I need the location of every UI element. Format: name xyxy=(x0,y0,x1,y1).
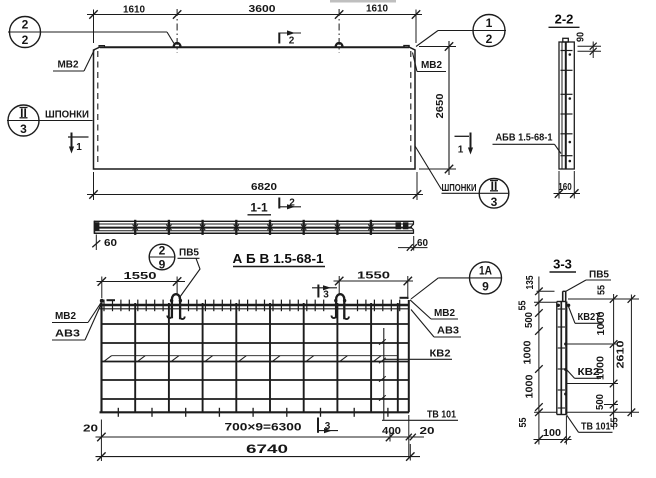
svg-text:МВ2: МВ2 xyxy=(434,308,455,319)
svg-text:400: 400 xyxy=(382,426,401,437)
svg-text:1000: 1000 xyxy=(596,356,607,380)
svg-text:6740: 6740 xyxy=(246,442,289,456)
svg-text:60: 60 xyxy=(104,238,118,249)
svg-text:20: 20 xyxy=(420,426,436,437)
svg-text:55: 55 xyxy=(518,300,529,310)
svg-text:3: 3 xyxy=(491,195,498,209)
svg-text:ПВ5: ПВ5 xyxy=(589,270,609,281)
svg-text:КВ2: КВ2 xyxy=(430,349,451,360)
svg-text:ШПОНКИ: ШПОНКИ xyxy=(442,183,477,194)
svg-text:1: 1 xyxy=(458,145,464,156)
svg-text:700×9=6300: 700×9=6300 xyxy=(225,422,302,434)
svg-text:ТВ 101: ТВ 101 xyxy=(427,410,456,421)
svg-text:135: 135 xyxy=(525,275,536,289)
svg-text:55: 55 xyxy=(610,417,621,427)
svg-text:3-3: 3-3 xyxy=(553,257,572,272)
svg-text:2-2: 2-2 xyxy=(555,12,574,27)
svg-text:ШПОНКИ: ШПОНКИ xyxy=(45,110,89,121)
svg-text:МВ2: МВ2 xyxy=(55,311,76,322)
svg-text:АБВ 1.5-68-1: АБВ 1.5-68-1 xyxy=(496,133,553,144)
svg-text:55: 55 xyxy=(597,285,608,295)
svg-text:3: 3 xyxy=(20,122,27,136)
svg-text:2610: 2610 xyxy=(616,340,627,369)
svg-text:1: 1 xyxy=(76,142,82,153)
svg-text:АВ3: АВ3 xyxy=(437,326,459,337)
svg-text:3: 3 xyxy=(323,290,329,301)
svg-text:2: 2 xyxy=(22,18,29,32)
svg-text:500: 500 xyxy=(524,312,535,328)
svg-text:2: 2 xyxy=(486,32,493,46)
svg-text:2: 2 xyxy=(22,33,29,47)
svg-text:1000: 1000 xyxy=(596,311,607,335)
svg-text:1: 1 xyxy=(486,16,493,30)
svg-text:1550: 1550 xyxy=(357,271,391,282)
svg-text:МВ2: МВ2 xyxy=(421,60,442,71)
svg-text:2: 2 xyxy=(289,198,295,209)
svg-text:9: 9 xyxy=(482,280,489,294)
svg-text:1А: 1А xyxy=(479,264,492,278)
svg-text:3600: 3600 xyxy=(249,4,277,15)
svg-text:100: 100 xyxy=(543,428,561,439)
svg-text:2: 2 xyxy=(159,244,166,258)
svg-text:160: 160 xyxy=(558,182,572,193)
svg-text:2650: 2650 xyxy=(435,93,446,118)
svg-text:1610: 1610 xyxy=(366,4,388,15)
svg-text:1610: 1610 xyxy=(123,5,145,16)
svg-text:1550: 1550 xyxy=(124,271,158,282)
svg-text:3: 3 xyxy=(325,421,331,432)
svg-text:60: 60 xyxy=(417,238,428,249)
svg-text:А Б В 1.5-68-1: А Б В 1.5-68-1 xyxy=(233,251,324,266)
svg-text:9: 9 xyxy=(159,258,166,272)
svg-text:500: 500 xyxy=(595,394,606,410)
svg-text:АВ3: АВ3 xyxy=(55,329,81,340)
svg-text:МВ2: МВ2 xyxy=(58,60,79,71)
svg-text:90: 90 xyxy=(576,32,587,42)
svg-text:ТВ 101: ТВ 101 xyxy=(581,421,611,432)
svg-text:2: 2 xyxy=(289,36,295,47)
svg-text:55: 55 xyxy=(518,417,529,427)
svg-text:1000: 1000 xyxy=(525,374,536,398)
svg-text:6820: 6820 xyxy=(251,182,278,193)
svg-text:ПВ5: ПВ5 xyxy=(179,248,199,259)
svg-text:1-1: 1-1 xyxy=(250,201,268,215)
svg-text:1000: 1000 xyxy=(523,340,534,364)
svg-text:20: 20 xyxy=(83,424,99,435)
